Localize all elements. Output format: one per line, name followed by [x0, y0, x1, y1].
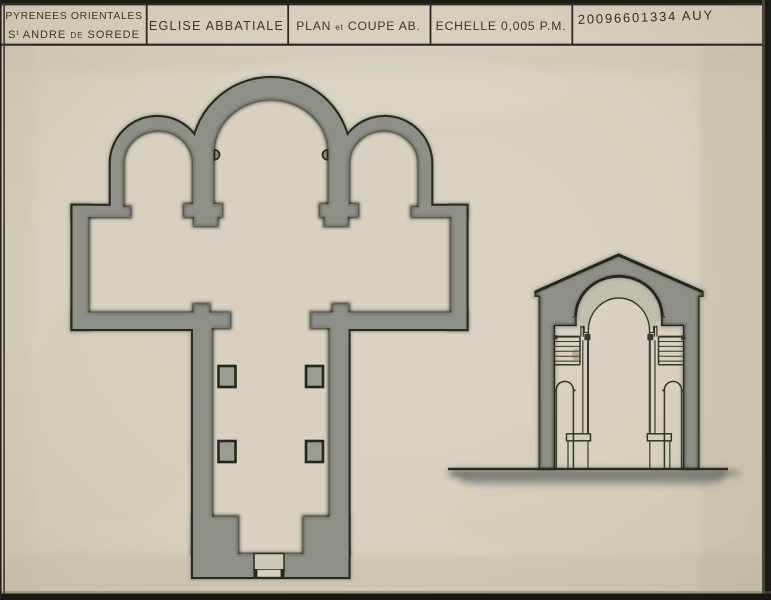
svg-text:PYRENEES ORIENTALES: PYRENEES ORIENTALES [5, 10, 142, 22]
svg-text:EGLISE ABBATIALE: EGLISE ABBATIALE [149, 19, 284, 33]
svg-text:ECHELLE 0,005 P.M.: ECHELLE 0,005 P.M. [436, 19, 567, 33]
svg-text:PLAN et COUPE AB.: PLAN et COUPE AB. [296, 19, 421, 33]
svg-text:St ANDRE DE SOREDE: St ANDRE DE SOREDE [8, 29, 140, 41]
